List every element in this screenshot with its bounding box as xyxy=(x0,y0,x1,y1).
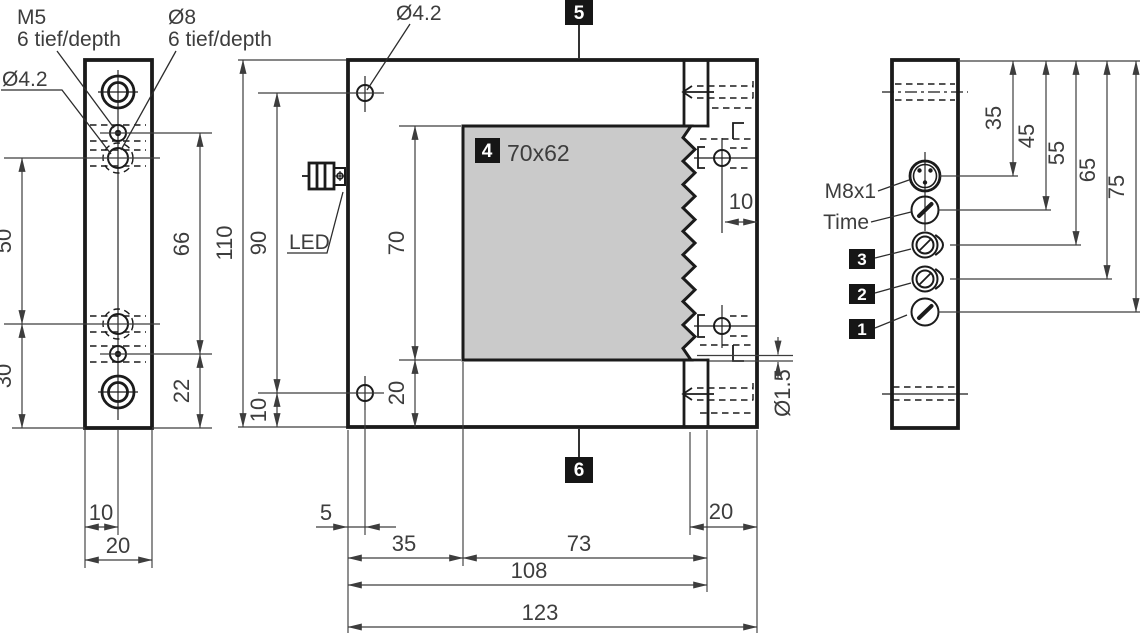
leader-o42-front xyxy=(367,24,410,90)
dim-75-label: 75 xyxy=(1104,175,1129,199)
dim-10-side-label: 10 xyxy=(246,398,271,422)
dim-30-label: 30 xyxy=(0,364,16,388)
dim-66-label: 66 xyxy=(169,232,194,256)
dim-10-label: 10 xyxy=(89,500,113,525)
dim-55-label: 55 xyxy=(1044,141,1069,165)
dim-20-bottom-label: 20 xyxy=(709,499,733,524)
hidden-clamp-top xyxy=(683,81,755,139)
window-size-label: 70x62 xyxy=(507,140,570,166)
callout-o42-front: Ø4.2 xyxy=(396,2,442,25)
badge-5-label: 5 xyxy=(574,3,585,24)
leader-o42-left xyxy=(1,90,111,154)
dim-110-label: 110 xyxy=(212,225,237,260)
dim-35r-label: 35 xyxy=(981,106,1006,130)
callout-m5-depth: 6 tief/depth xyxy=(17,28,121,51)
dim-70-label: 70 xyxy=(384,231,409,255)
dim-123-label: 123 xyxy=(522,600,559,625)
dim-65-label: 65 xyxy=(1075,158,1100,182)
callout-o8-depth: 6 tief/depth xyxy=(168,28,272,51)
dim-50-label: 50 xyxy=(0,229,16,253)
badge-2-label: 2 xyxy=(857,285,866,304)
dim-22-label: 22 xyxy=(169,379,194,403)
dim-73-label: 73 xyxy=(567,531,591,556)
dim-10-edge-label: 10 xyxy=(729,189,753,214)
dim-20-side-label: 20 xyxy=(384,381,409,405)
badge-3-label: 3 xyxy=(857,250,866,269)
dim-90-label: 90 xyxy=(246,231,271,255)
badge-6-label: 6 xyxy=(574,460,585,481)
left-view: 50 30 66 22 10 20 M5 6 tief/depth Ø8 6 t… xyxy=(0,6,272,568)
potentiometer-2 xyxy=(913,267,944,292)
dim-20-label: 20 xyxy=(106,533,130,558)
dim-o15-label: Ø1.5 xyxy=(770,369,795,417)
callout-o42-left: Ø4.2 xyxy=(2,68,48,91)
right-view: 35 45 55 65 75 M8x1 Time 3 2 1 xyxy=(823,60,1140,428)
potentiometer-1 xyxy=(912,299,939,326)
leader-o8 xyxy=(121,51,176,150)
dim-35-label: 35 xyxy=(392,531,416,556)
callout-m5: M5 xyxy=(17,6,46,29)
clamp-hole-bottom xyxy=(694,305,757,348)
dim-5-label: 5 xyxy=(320,500,332,525)
m8x1-label: M8x1 xyxy=(825,180,876,203)
led-label: LED xyxy=(289,231,330,254)
badge-1-label: 1 xyxy=(857,320,866,339)
hidden-lines-top xyxy=(882,84,968,100)
dim-45-label: 45 xyxy=(1014,124,1039,148)
front-bottom-extension-lines xyxy=(348,362,757,633)
m8-connector xyxy=(302,163,345,189)
beam-dimension-o15: Ø1.5 xyxy=(697,337,795,417)
dim-108-label: 108 xyxy=(511,558,548,583)
potentiometer-3 xyxy=(913,233,944,258)
clamp-hole-top xyxy=(694,138,757,233)
hidden-lines-bottom xyxy=(882,387,968,400)
badge-4-label: 4 xyxy=(482,141,493,162)
drawing-stage: 50 30 66 22 10 20 M5 6 tief/depth Ø8 6 t… xyxy=(0,0,1140,635)
front-view: LED Ø4.2 5 6 4 70x62 110 90 10 70 20 xyxy=(212,0,795,633)
time-label: Time xyxy=(823,211,869,234)
callout-o8: Ø8 xyxy=(168,6,196,29)
technical-drawing: 50 30 66 22 10 20 M5 6 tief/depth Ø8 6 t… xyxy=(0,0,1140,635)
